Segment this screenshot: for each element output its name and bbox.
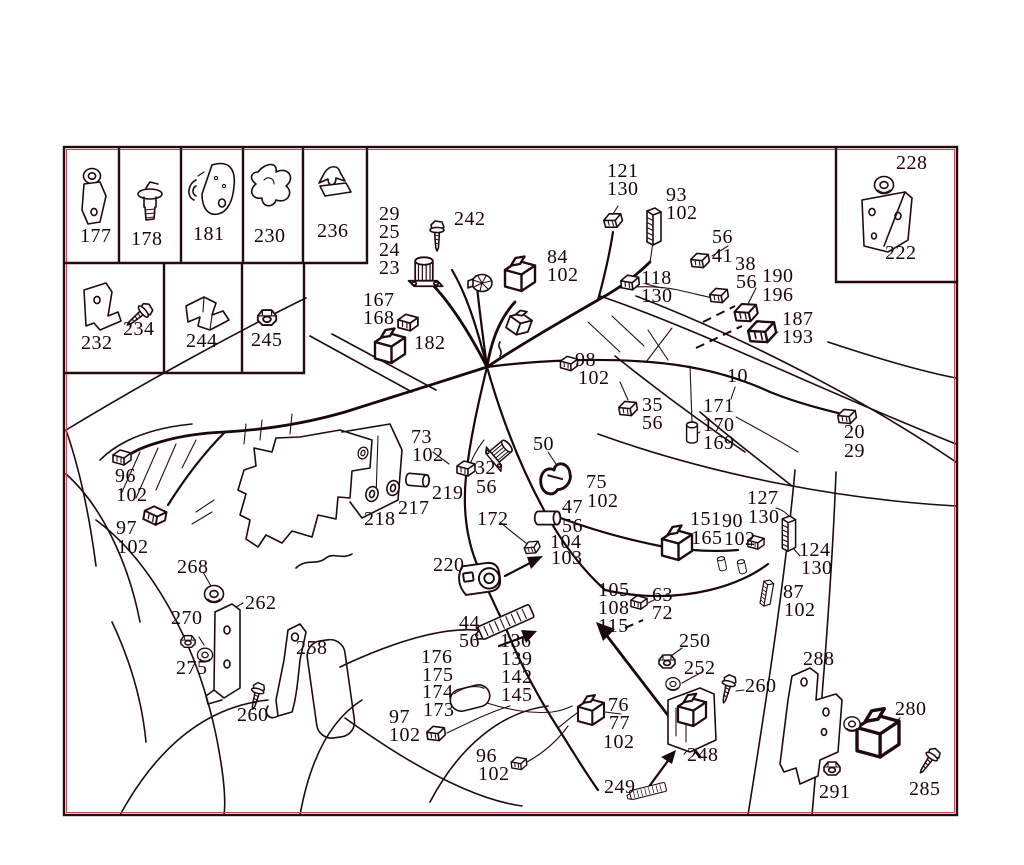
callout-label-102: 102 bbox=[547, 266, 579, 284]
screw-242-icon bbox=[430, 221, 444, 251]
callout-label-165: 165 bbox=[691, 529, 723, 547]
callout-label-220: 220 bbox=[433, 556, 465, 574]
callout-label-234: 234 bbox=[123, 320, 155, 338]
connector-118-130-icon bbox=[620, 274, 639, 291]
callout-label-178: 178 bbox=[131, 230, 163, 248]
clip-50-icon bbox=[537, 462, 574, 496]
callout-label-218: 218 bbox=[364, 510, 396, 528]
callout-label-270: 270 bbox=[171, 609, 203, 627]
connector-97-102-bottom-icon bbox=[426, 725, 446, 742]
callout-label-173: 173 bbox=[423, 701, 455, 719]
callout-label-285: 285 bbox=[909, 780, 941, 798]
connector-56-41-icon bbox=[690, 252, 710, 270]
seal-218-icon bbox=[364, 485, 379, 503]
canister-29-23-icon bbox=[409, 257, 443, 286]
callout-label-288: 288 bbox=[803, 650, 835, 668]
callout-label-41: 41 bbox=[712, 247, 733, 265]
grommet-252-icon bbox=[666, 678, 680, 691]
callout-label-169: 169 bbox=[703, 434, 735, 452]
callout-label-190: 190 bbox=[762, 267, 794, 285]
callout-label-102: 102 bbox=[412, 446, 444, 464]
callout-label-102: 102 bbox=[666, 204, 698, 222]
callout-label-102: 102 bbox=[784, 601, 816, 619]
callout-label-244: 244 bbox=[186, 332, 218, 350]
callout-label-56: 56 bbox=[736, 273, 757, 291]
callout-label-248: 248 bbox=[687, 746, 719, 764]
pod-176-173-icon bbox=[448, 682, 492, 713]
callout-label-23: 23 bbox=[379, 259, 400, 277]
screw-285-icon bbox=[915, 746, 942, 777]
fan-disc-icon bbox=[468, 275, 492, 292]
relay-151-165-icon bbox=[662, 526, 692, 561]
callout-label-196: 196 bbox=[762, 286, 794, 304]
callout-label-151: 151 bbox=[690, 510, 722, 528]
callout-label-242: 242 bbox=[454, 210, 486, 228]
screw-260-right-icon bbox=[717, 674, 737, 705]
relay-182-icon bbox=[375, 329, 405, 364]
callout-label-260: 260 bbox=[745, 677, 777, 695]
motor-280-icon bbox=[857, 709, 899, 757]
callout-label-10: 10 bbox=[727, 367, 748, 385]
callout-label-102: 102 bbox=[478, 765, 510, 783]
callout-label-232: 232 bbox=[81, 334, 113, 352]
callout-label-171: 171 bbox=[703, 397, 735, 415]
callout-label-260: 260 bbox=[237, 706, 269, 724]
callout-label-102: 102 bbox=[117, 538, 149, 556]
callout-label-280: 280 bbox=[895, 700, 927, 718]
connector-96-102-top-icon bbox=[113, 450, 131, 465]
callout-label-130: 130 bbox=[607, 180, 639, 198]
plug-104-103-icon bbox=[523, 539, 542, 556]
callout-label-29: 29 bbox=[844, 442, 865, 460]
callout-label-182: 182 bbox=[414, 334, 446, 352]
grommet-280-icon bbox=[844, 717, 860, 731]
callout-label-102: 102 bbox=[603, 733, 635, 751]
callout-label-230: 230 bbox=[254, 227, 286, 245]
callout-label-56: 56 bbox=[642, 414, 663, 432]
connector-97-102-top-icon bbox=[143, 505, 167, 526]
nut-291-icon bbox=[824, 762, 840, 775]
callout-label-56: 56 bbox=[459, 632, 480, 650]
inset-part-sketches bbox=[82, 164, 351, 330]
relay-84-icon bbox=[505, 257, 535, 292]
callout-label-77: 77 bbox=[609, 714, 630, 732]
callout-label-102: 102 bbox=[587, 492, 619, 510]
connector-block-93-icon bbox=[647, 208, 661, 245]
callout-label-275: 275 bbox=[176, 659, 208, 677]
callout-label-222: 222 bbox=[885, 244, 917, 262]
callout-label-56: 56 bbox=[712, 228, 733, 246]
callout-label-177: 177 bbox=[80, 227, 112, 245]
connector-87-102-icon bbox=[760, 579, 775, 607]
nut-245-icon bbox=[258, 310, 276, 325]
nut-250-icon bbox=[659, 655, 675, 668]
callout-label-103: 103 bbox=[551, 549, 583, 567]
cylinder-171-169-icon bbox=[687, 422, 698, 443]
pin-a-icon bbox=[717, 556, 727, 571]
grommet-228-icon bbox=[875, 177, 894, 194]
connector-35-56-icon bbox=[618, 400, 638, 418]
callout-label-245: 245 bbox=[251, 331, 283, 349]
callout-label-20: 20 bbox=[844, 423, 865, 441]
connector-96-102-bottom-icon bbox=[511, 756, 527, 770]
callout-label-145: 145 bbox=[501, 686, 533, 704]
callout-label-130: 130 bbox=[801, 559, 833, 577]
callout-label-258: 258 bbox=[296, 639, 328, 657]
callout-label-252: 252 bbox=[684, 659, 716, 677]
callout-label-96: 96 bbox=[115, 467, 136, 485]
callout-label-268: 268 bbox=[177, 558, 209, 576]
parts-diagram-canvas bbox=[0, 0, 1024, 865]
diagram-stage: 1771781812302362322342442452282222925242… bbox=[0, 0, 1024, 865]
callout-label-72: 72 bbox=[652, 604, 673, 622]
callout-label-75: 75 bbox=[586, 473, 607, 491]
callout-label-193: 193 bbox=[782, 328, 814, 346]
callout-label-219: 219 bbox=[432, 484, 464, 502]
callout-label-102: 102 bbox=[116, 486, 148, 504]
sleeve-219-icon bbox=[405, 473, 429, 487]
callout-label-217: 217 bbox=[398, 499, 430, 517]
connector-121-icon bbox=[602, 211, 623, 230]
callout-label-32: 32 bbox=[475, 459, 496, 477]
sensor-hub-icon bbox=[505, 307, 534, 338]
callout-label-47: 47 bbox=[562, 498, 583, 516]
pin-b-icon bbox=[737, 559, 747, 574]
callout-label-102: 102 bbox=[578, 369, 610, 387]
connector-38-56-icon bbox=[709, 287, 729, 305]
connector-105-icon bbox=[631, 596, 647, 610]
callout-label-97: 97 bbox=[116, 519, 137, 537]
callout-label-291: 291 bbox=[819, 783, 851, 801]
callout-label-168: 168 bbox=[363, 309, 395, 327]
sleeve-47-56-icon bbox=[535, 511, 561, 524]
connector-block-127-icon bbox=[782, 516, 795, 551]
callout-label-115: 115 bbox=[598, 617, 629, 635]
callout-label-262: 262 bbox=[245, 594, 277, 612]
callout-label-250: 250 bbox=[679, 632, 711, 650]
callout-label-249: 249 bbox=[604, 778, 636, 796]
callout-label-172: 172 bbox=[477, 510, 509, 528]
nut-270-icon bbox=[181, 636, 195, 648]
callout-label-236: 236 bbox=[317, 222, 349, 240]
callout-label-181: 181 bbox=[193, 225, 225, 243]
loop-seal-icon bbox=[356, 446, 369, 461]
connector-32-56-icon bbox=[457, 461, 475, 476]
callout-label-130: 130 bbox=[641, 287, 673, 305]
callout-label-102: 102 bbox=[389, 726, 421, 744]
connector-187-193-icon bbox=[747, 318, 778, 346]
callout-label-127: 127 bbox=[747, 489, 779, 507]
connector-167-168-icon bbox=[398, 314, 418, 331]
connector-190-196-icon bbox=[733, 301, 759, 324]
callout-label-56: 56 bbox=[476, 478, 497, 496]
grommet-268-icon bbox=[205, 586, 224, 603]
callout-label-102: 102 bbox=[724, 530, 756, 548]
callout-label-130: 130 bbox=[748, 508, 780, 526]
callout-label-50: 50 bbox=[533, 435, 554, 453]
callout-label-228: 228 bbox=[896, 154, 928, 172]
relay-76-77-icon bbox=[578, 695, 604, 725]
